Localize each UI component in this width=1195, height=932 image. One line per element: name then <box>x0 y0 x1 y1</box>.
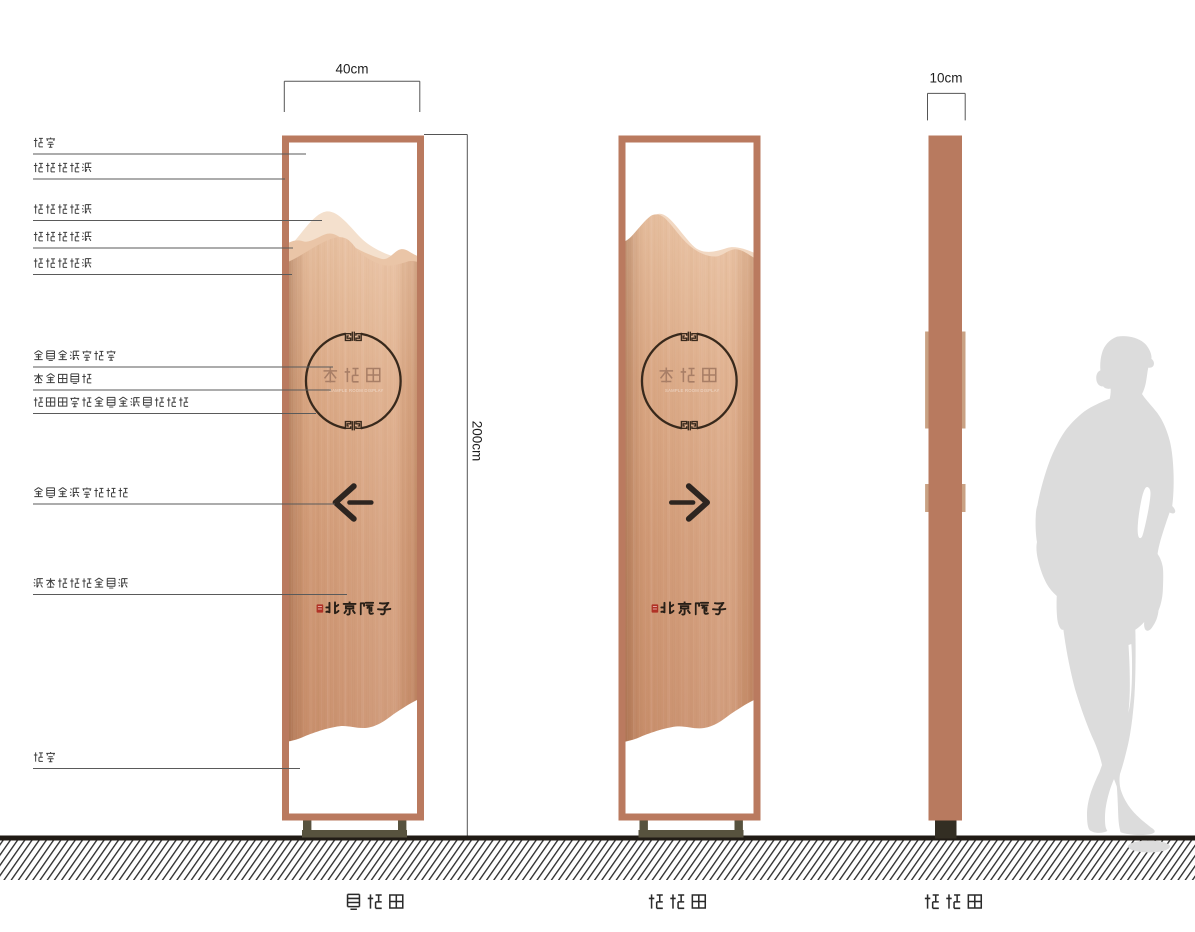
svg-text:10cm: 10cm <box>929 71 962 86</box>
svg-text:SAMPLE ROOM DISPLAY: SAMPLE ROOM DISPLAY <box>665 388 719 393</box>
svg-text:200cm: 200cm <box>470 421 485 462</box>
svg-text:40cm: 40cm <box>335 62 368 77</box>
svg-text:SAMPLE ROOM DISPLAY: SAMPLE ROOM DISPLAY <box>329 388 383 393</box>
